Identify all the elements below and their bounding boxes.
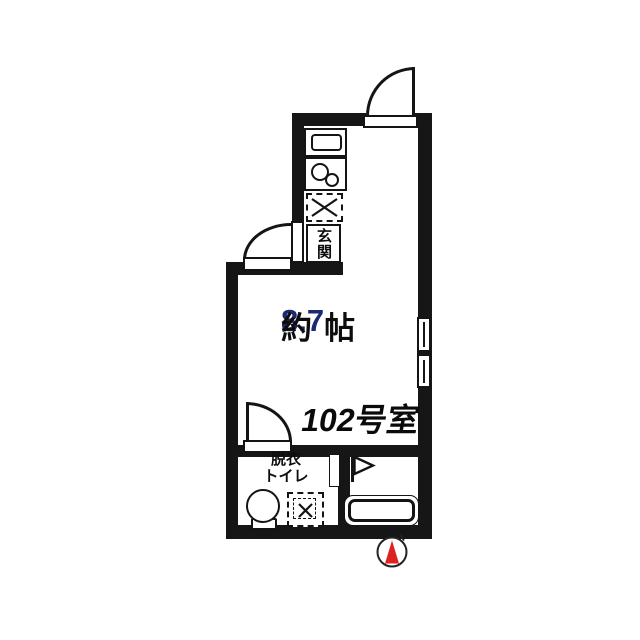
dressing-room-label: 脱衣 トイレ <box>240 451 332 485</box>
room-size-label: 約8.7帖 <box>281 303 324 339</box>
dressing-label-line2: トイレ <box>240 468 332 485</box>
room-number-label: 102号室 <box>298 395 424 441</box>
room-size-unit: 帖 <box>324 303 355 348</box>
washer-x-dressing-icon <box>299 504 312 517</box>
washer-x-kitchen-icon <box>312 199 337 216</box>
room-size-prefix: 約 <box>281 303 312 348</box>
floor-plan: 玄関 約8.7帖 102号室 <box>0 0 640 640</box>
dressing-label-line1: 脱衣 <box>240 451 332 468</box>
flag-marker-icon <box>353 453 374 482</box>
compass-north-icon <box>378 535 407 567</box>
